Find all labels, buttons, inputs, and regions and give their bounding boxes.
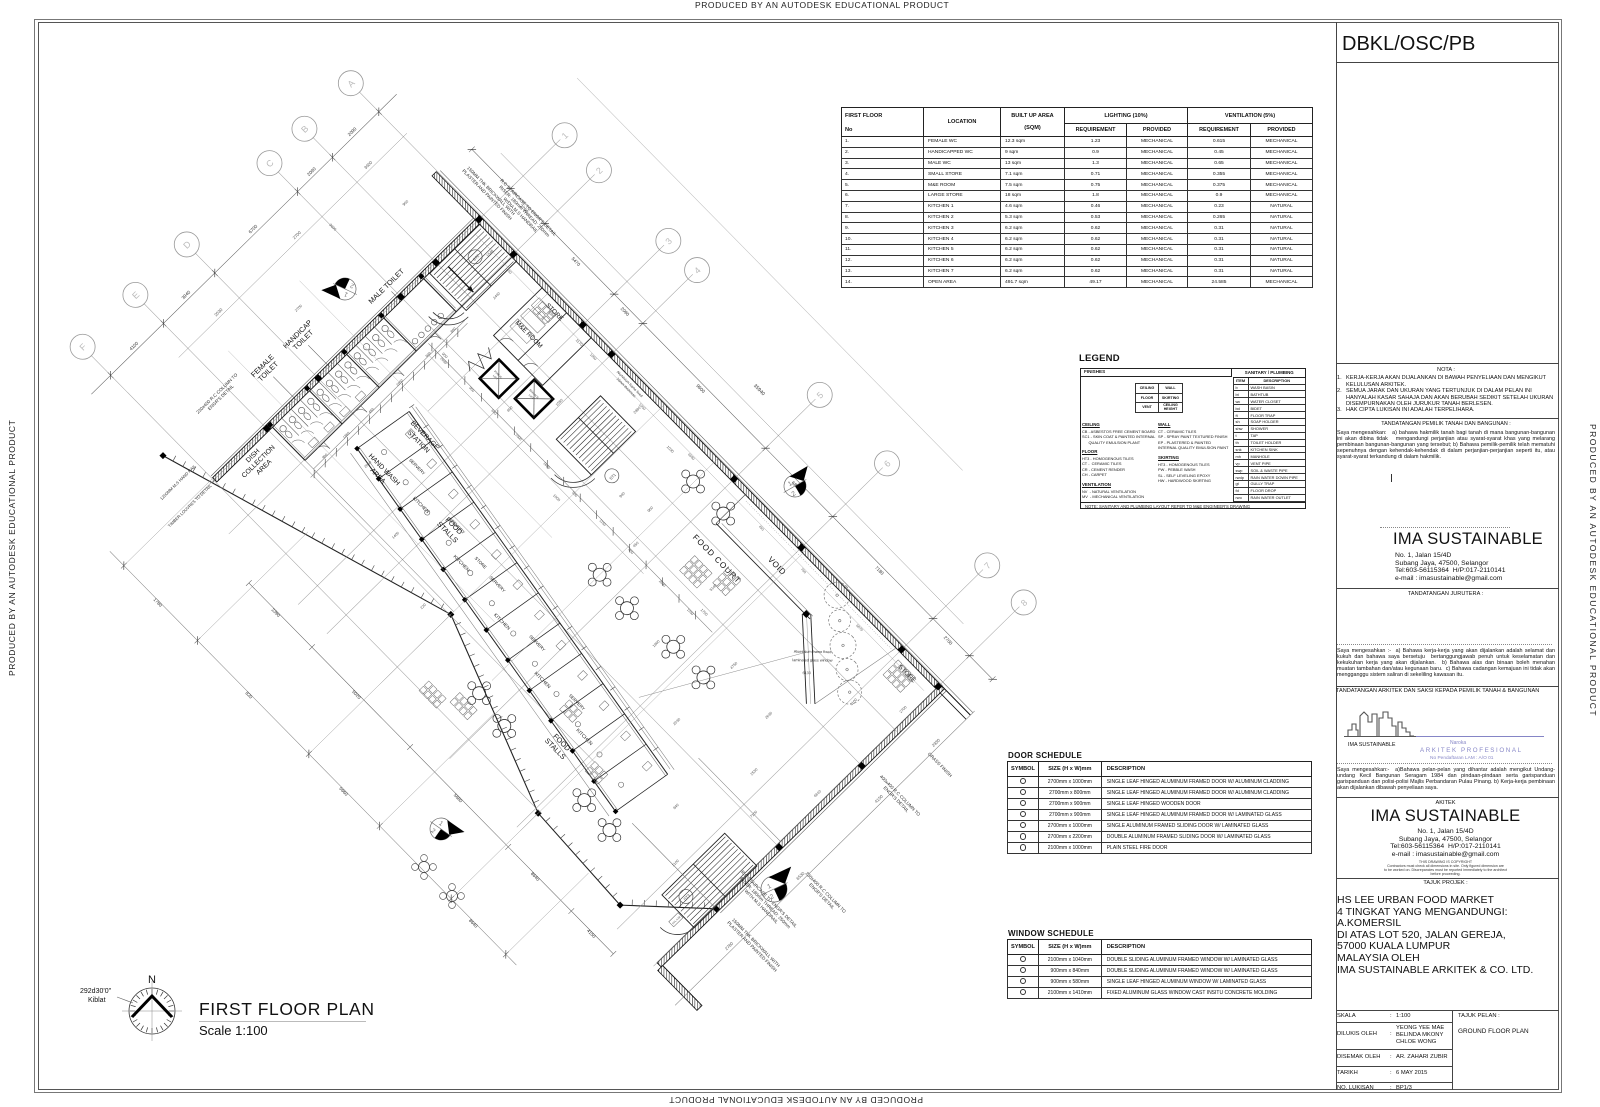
svg-text:Aluminium frame fixed: Aluminium frame fixed [794, 650, 832, 654]
svg-text:A: A [346, 78, 357, 89]
svg-text:GRASS FINISH: GRASS FINISH [927, 751, 953, 778]
svg-text:2090: 2090 [347, 126, 358, 137]
svg-text:ST3: ST3 [682, 892, 691, 901]
svg-text:E: E [130, 290, 141, 301]
svg-text:230x400 R.C COLUMN TO: 230x400 R.C COLUMN TO [804, 871, 847, 914]
svg-text:450: 450 [632, 541, 639, 548]
svg-text:1000: 1000 [514, 433, 522, 442]
svg-text:6580: 6580 [687, 452, 695, 461]
svg-text:5: 5 [815, 390, 826, 401]
svg-text:2530: 2530 [750, 768, 759, 777]
svg-text:8640: 8640 [468, 918, 479, 929]
svg-text:6870: 6870 [855, 624, 863, 633]
svg-text:1860: 1860 [652, 639, 661, 648]
svg-text:2: 2 [594, 165, 605, 176]
svg-text:2030: 2030 [213, 307, 224, 318]
svg-text:960: 960 [647, 506, 654, 513]
svg-text:B: B [299, 123, 310, 134]
svg-text:C: C [264, 157, 276, 169]
svg-text:R.C STAIRCASE TO ENGR'S DET: R.C STAIRCASE TO ENGR'S DETAIL [740, 869, 798, 928]
svg-text:900: 900 [571, 491, 578, 498]
svg-text:1060: 1060 [589, 353, 597, 362]
svg-text:1000: 1000 [552, 494, 561, 503]
svg-text:2700: 2700 [899, 705, 908, 714]
svg-text:2390: 2390 [270, 607, 281, 618]
svg-text:450: 450 [505, 268, 512, 275]
svg-text:800: 800 [506, 406, 513, 413]
svg-text:1150: 1150 [598, 519, 606, 527]
svg-text:3: 3 [663, 236, 674, 247]
svg-text:2630: 2630 [658, 579, 666, 588]
svg-text:1400: 1400 [391, 531, 400, 540]
svg-text:940: 940 [619, 491, 626, 498]
svg-text:450: 450 [758, 524, 765, 531]
svg-text:950: 950 [468, 386, 475, 393]
svg-text:STORE: STORE [474, 556, 488, 570]
svg-text:SERVERY: SERVERY [408, 458, 426, 476]
svg-text:KITCHEN: KITCHEN [492, 612, 511, 632]
svg-text:KITCHEN: KITCHEN [411, 496, 430, 516]
svg-text:1750: 1750 [700, 608, 709, 617]
svg-text:1200MM M.S HAND RAIL: 1200MM M.S HAND RAIL [159, 463, 198, 501]
svg-text:2630: 2630 [764, 711, 773, 720]
svg-text:4150: 4150 [874, 793, 885, 804]
svg-text:7: 7 [982, 560, 993, 571]
svg-text:2700: 2700 [292, 230, 303, 241]
svg-text:150MM THK BRICKWALL WITH: 150MM THK BRICKWALL WITH [731, 917, 781, 968]
svg-text:450: 450 [368, 407, 375, 414]
svg-text:FFL 4.68: FFL 4.68 [671, 915, 682, 925]
svg-text:8640: 8640 [530, 871, 541, 882]
svg-text:D: D [181, 239, 193, 251]
svg-text:4150: 4150 [586, 928, 597, 939]
svg-text:1: 1 [560, 130, 571, 141]
svg-text:1030: 1030 [666, 445, 675, 454]
svg-text:2440: 2440 [492, 292, 501, 301]
svg-text:7180: 7180 [874, 565, 885, 576]
svg-text:SERVERY: SERVERY [528, 634, 546, 652]
svg-text:760: 760 [800, 567, 807, 574]
svg-text:PLASTER AND PAINTED FINISH: PLASTER AND PAINTED FINISH [726, 920, 778, 973]
svg-text:1100: 1100 [671, 859, 680, 868]
svg-text:6530: 6530 [795, 870, 806, 881]
svg-text:450: 450 [627, 548, 634, 555]
svg-text:5020: 5020 [351, 689, 362, 700]
svg-text:1630: 1630 [542, 461, 550, 470]
svg-text:2030: 2030 [672, 717, 681, 726]
svg-text:400x400 R.C COLUMN TO: 400x400 R.C COLUMN TO [879, 774, 922, 817]
svg-text:2700: 2700 [943, 635, 954, 646]
svg-text:5660: 5660 [338, 786, 349, 797]
svg-text:6700: 6700 [248, 223, 259, 234]
svg-text:3940: 3940 [181, 289, 192, 300]
svg-text:2090: 2090 [306, 166, 317, 177]
svg-text:5470: 5470 [571, 256, 582, 267]
svg-text:SERVERY: SERVERY [488, 575, 506, 593]
svg-text:800: 800 [450, 327, 457, 334]
svg-text:4100: 4100 [128, 340, 139, 351]
svg-text:5660: 5660 [453, 793, 464, 804]
svg-text:2090: 2090 [620, 306, 631, 317]
svg-text:1: 1 [343, 290, 350, 298]
svg-text:VOID: VOID [766, 555, 788, 577]
svg-text:6130: 6130 [802, 671, 810, 675]
svg-text:8: 8 [1019, 597, 1030, 608]
svg-text:2: 2 [430, 827, 437, 835]
svg-text:F: F [78, 341, 89, 352]
svg-text:1: 1 [766, 883, 773, 891]
svg-text:900: 900 [402, 200, 409, 207]
svg-text:2930: 2930 [931, 737, 942, 748]
svg-text:4750: 4750 [730, 661, 739, 670]
svg-text:2: 2 [349, 281, 356, 289]
svg-text:KITCHEN: KITCHEN [533, 671, 552, 691]
svg-text:6: 6 [882, 458, 893, 469]
svg-text:2700: 2700 [294, 304, 303, 313]
svg-text:1780: 1780 [152, 597, 163, 608]
svg-text:ST1: ST1 [608, 472, 617, 481]
svg-text:940: 940 [672, 803, 679, 810]
svg-text:900: 900 [321, 453, 328, 460]
svg-text:220: 220 [420, 603, 427, 610]
svg-text:3600: 3600 [363, 159, 374, 170]
svg-text:2780: 2780 [724, 940, 735, 951]
svg-text:1540: 1540 [486, 249, 495, 258]
svg-text:N: N [148, 974, 156, 986]
svg-text:35940: 35940 [752, 383, 766, 397]
svg-text:5140: 5140 [709, 583, 718, 592]
svg-text:1100: 1100 [850, 698, 859, 707]
svg-text:4: 4 [692, 265, 703, 276]
svg-text:1100: 1100 [686, 608, 694, 616]
svg-text:6610: 6610 [813, 789, 822, 798]
svg-text:1860: 1860 [342, 431, 351, 439]
svg-text:laminated glass window: laminated glass window [792, 658, 832, 662]
svg-text:9600: 9600 [695, 383, 706, 394]
svg-text:820: 820 [244, 691, 253, 700]
